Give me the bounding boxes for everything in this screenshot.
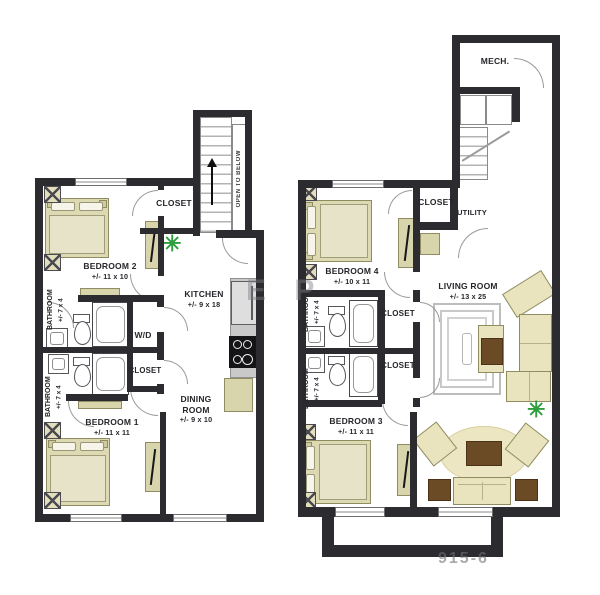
watermark-bottom-right: 915-6 xyxy=(438,550,489,568)
wall xyxy=(452,35,460,93)
room-dims: +/- 9 x 10 xyxy=(166,415,226,424)
stair-landing xyxy=(460,95,486,125)
window xyxy=(332,180,384,188)
room-label-utility: UTILITY xyxy=(450,208,494,217)
door-arc xyxy=(388,190,412,214)
wall xyxy=(216,230,264,238)
nightstand xyxy=(44,186,61,203)
wall xyxy=(127,295,133,392)
nightstand xyxy=(44,492,61,509)
wall xyxy=(410,412,417,507)
door-arc xyxy=(458,228,488,258)
wall xyxy=(158,178,164,190)
room-label-bedroom3: BEDROOM 3 +/- 11 x 11 xyxy=(324,416,388,436)
wall xyxy=(413,398,420,407)
room-name: BATHROOM xyxy=(46,284,57,336)
room-dims: +/- 13 x 25 xyxy=(438,292,498,301)
open-to-below-strip: OPEN TO BELOW xyxy=(232,124,246,234)
wall xyxy=(452,87,514,94)
room-name: DINING ROOM xyxy=(166,394,226,415)
wall xyxy=(160,412,166,514)
room-label-closet-a: CLOSET xyxy=(376,309,420,319)
wall xyxy=(452,87,460,184)
room-dims: +/- 11 x 11 xyxy=(80,428,144,437)
wall xyxy=(512,87,520,122)
wall xyxy=(491,515,503,557)
water-heater xyxy=(420,233,440,255)
room-label-bedroom4: BEDROOM 4 +/- 10 x 11 xyxy=(322,266,382,286)
bathtub-icon xyxy=(349,300,378,347)
wall xyxy=(193,110,252,117)
door-arc xyxy=(384,272,410,298)
wall xyxy=(66,394,128,401)
window xyxy=(70,514,122,522)
room-label-kitchen: KITCHEN +/- 9 x 18 xyxy=(181,289,227,309)
room-name: BEDROOM 2 xyxy=(78,261,142,272)
room-dims: +/- 7 x 4 xyxy=(55,372,65,422)
dresser xyxy=(145,442,161,492)
room-dims: +/- 11 x 10 xyxy=(78,272,142,281)
wall xyxy=(157,332,164,360)
wall xyxy=(127,347,164,353)
room-name: BEDROOM 4 xyxy=(322,266,382,277)
nightstand xyxy=(44,422,61,439)
wall xyxy=(298,180,306,514)
plant-icon: ✳ xyxy=(527,399,545,421)
wall xyxy=(140,228,200,234)
toilet-icon xyxy=(74,321,91,345)
room-label-wd: W/D xyxy=(128,330,158,341)
wall xyxy=(552,35,560,517)
watermark-center: E P xyxy=(246,274,324,308)
wall xyxy=(78,295,164,302)
toilet-icon xyxy=(329,313,346,337)
room-dims: +/- 10 x 11 xyxy=(322,277,382,286)
room-label-closet-top: CLOSET xyxy=(412,197,460,208)
coffee-table xyxy=(466,441,502,466)
wall xyxy=(452,35,560,43)
room-label-bedroom2: BEDROOM 2 +/- 11 x 10 xyxy=(78,261,142,281)
stair-direction-arrow-icon xyxy=(207,158,217,167)
bathtub-icon xyxy=(349,352,378,397)
toilet-icon xyxy=(329,363,346,386)
bathtub-icon xyxy=(92,302,129,347)
side-table xyxy=(428,479,451,501)
room-dims: +/- 7 x 4 xyxy=(57,284,67,336)
room-dims: +/- 7 x 4 xyxy=(313,364,323,414)
stairs-note-label: OPEN TO BELOW xyxy=(236,150,242,207)
loveseat xyxy=(453,477,511,505)
wall xyxy=(127,386,164,392)
room-name: BEDROOM 1 xyxy=(80,417,144,428)
room-label-closet-top: CLOSET xyxy=(150,198,198,209)
door-arc xyxy=(164,360,188,384)
room-label-bathroom-bottom: BATHROOM +/- 7 x 4 xyxy=(44,372,64,422)
bed xyxy=(303,200,372,262)
window xyxy=(438,507,493,517)
room-dims: +/- 11 x 11 xyxy=(324,427,388,436)
room-name: BEDROOM 3 xyxy=(324,416,388,427)
sink-icon xyxy=(48,354,69,374)
room-name: BATHROOM xyxy=(302,364,313,414)
stair-direction-arrow-stem xyxy=(211,167,213,205)
door-arc xyxy=(420,378,440,398)
wall xyxy=(378,290,385,404)
wall xyxy=(193,110,200,236)
stove-icon xyxy=(229,336,256,368)
wall xyxy=(385,348,413,354)
tv-icon xyxy=(481,338,503,365)
door-arc xyxy=(222,238,248,264)
room-label-bathroom-bottom: BATHROOM +/- 7 x 4 xyxy=(302,364,322,414)
sofa-section xyxy=(519,314,552,372)
toilet-icon xyxy=(74,364,91,387)
room-label-bathroom-top: BATHROOM +/- 7 x 4 xyxy=(46,284,66,336)
bed xyxy=(45,198,109,258)
room-name: BATHROOM xyxy=(44,372,55,422)
room-label-closet-b: CLOSET xyxy=(376,361,420,371)
wall xyxy=(157,295,164,307)
bathtub-icon xyxy=(92,353,129,395)
side-table xyxy=(515,479,538,501)
room-label-closet-mid: CLOSET xyxy=(125,366,165,376)
room-name: KITCHEN xyxy=(181,289,227,300)
wall xyxy=(413,290,420,302)
room-name: LIVING ROOM xyxy=(438,281,498,292)
window xyxy=(173,514,227,522)
room-label-living: LIVING ROOM +/- 13 x 25 xyxy=(438,281,498,301)
wall xyxy=(35,178,43,522)
wall xyxy=(43,347,127,353)
room-label-bedroom1: BEDROOM 1 +/- 11 x 11 xyxy=(80,417,144,437)
cabinet xyxy=(224,378,253,412)
room-label-dining: DINING ROOM +/- 9 x 10 xyxy=(166,394,226,424)
plant-icon: ✳ xyxy=(163,233,181,255)
sofa-section xyxy=(502,270,556,318)
stair-landing xyxy=(486,95,512,125)
wall xyxy=(245,110,252,232)
room-label-mech: MECH. xyxy=(470,56,520,67)
wall xyxy=(306,348,380,354)
staircase xyxy=(200,117,232,233)
door-arc xyxy=(164,307,188,331)
wall xyxy=(158,216,164,276)
room-dims: +/- 9 x 18 xyxy=(181,300,227,309)
window xyxy=(335,507,385,517)
floor-plan-canvas: OPEN TO BELOW BEDROOM 2 +/- 11 x 10 CLOS… xyxy=(0,0,600,595)
nightstand xyxy=(44,254,61,271)
door-arc xyxy=(130,388,158,416)
window xyxy=(75,178,127,186)
